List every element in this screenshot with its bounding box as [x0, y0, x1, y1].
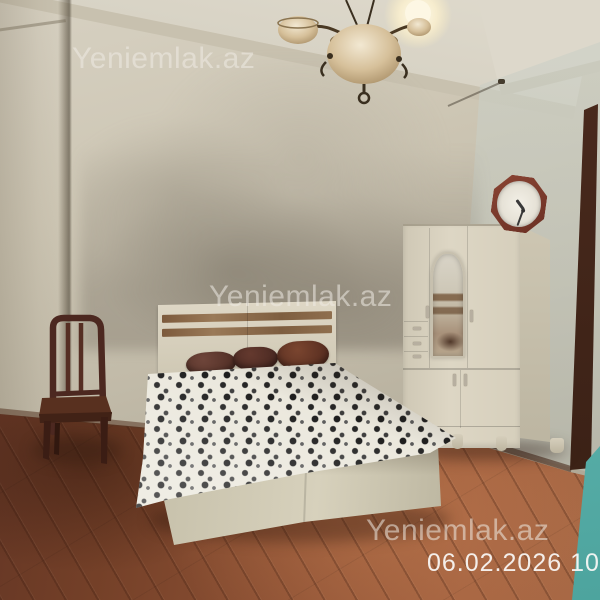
drawer-handle	[413, 327, 421, 330]
wardrobe-foot	[496, 436, 507, 451]
bowl-ornament	[327, 53, 333, 59]
chandelier	[268, 0, 458, 110]
bowl-ornament	[396, 56, 402, 62]
listing-photo: Yeniemlak.az Yeniemlak.az Yeniemlak.az 0…	[0, 0, 600, 600]
chair-front-leg	[101, 417, 108, 464]
chandelier-bowl	[327, 24, 401, 84]
wooden-chair	[38, 314, 118, 464]
wardrobe-side-panel	[520, 226, 550, 448]
lower-doors-divider	[460, 370, 461, 428]
wardrobe-panel-line	[429, 228, 430, 368]
chandelier-shade-right	[407, 18, 431, 36]
watermark-center: Yeniemlak.az	[209, 280, 392, 314]
chair-back-slats	[68, 323, 81, 394]
watermark-bottom-right: Yeniemlak.az	[366, 514, 549, 548]
chair-rear-leg	[54, 423, 60, 455]
wardrobe-foot	[452, 434, 463, 449]
drawer-handle	[413, 342, 421, 345]
clock-center	[521, 208, 526, 213]
finial-ring	[359, 93, 369, 103]
wardrobe-foot	[550, 438, 564, 453]
wire-clip	[498, 79, 505, 84]
drawer-line	[404, 321, 428, 322]
chair-back-frame	[53, 318, 104, 442]
photo-timestamp: 06.02.2026 10:32	[427, 549, 600, 578]
wardrobe-mirror	[431, 252, 465, 358]
drawer-handle	[413, 355, 421, 358]
chair-mid-rail	[56, 392, 102, 394]
drawer-line	[404, 351, 428, 352]
door-handle	[464, 374, 467, 386]
door-handle	[470, 310, 473, 322]
door-handle	[453, 374, 456, 386]
wardrobe-panel-line	[467, 226, 468, 368]
door-handle	[426, 306, 429, 318]
chair-front-leg	[43, 421, 51, 460]
watermark-top-left: Yeniemlak.az	[72, 42, 255, 76]
drawer-line	[404, 336, 428, 337]
clock-face	[494, 178, 544, 230]
wardrobe-mid-divider	[403, 368, 520, 370]
